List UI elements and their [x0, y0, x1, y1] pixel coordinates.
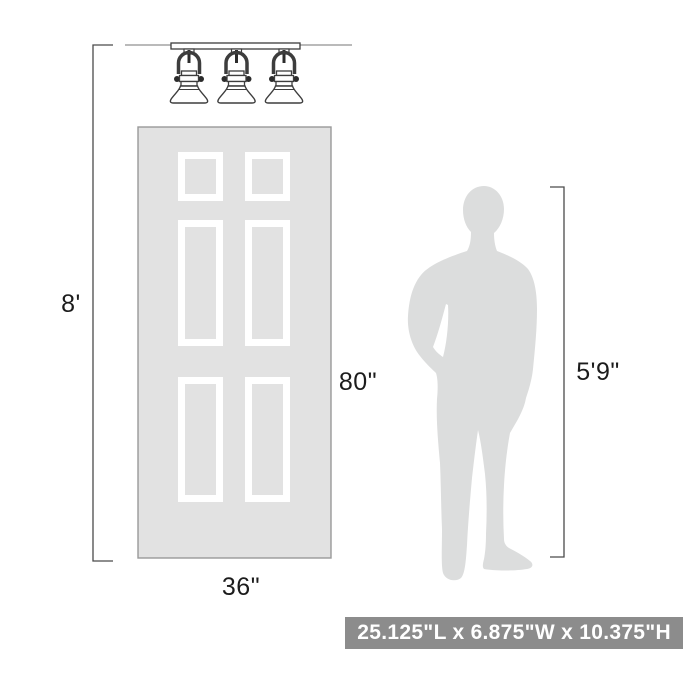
door-width-label: 36" [217, 573, 265, 602]
diagram-canvas [0, 0, 700, 700]
person-height-dimension-line [550, 187, 564, 557]
ceiling-height-label: 8' [54, 290, 88, 319]
door-slab [138, 127, 331, 558]
light-fixture [170, 43, 302, 103]
ceiling-height-dimension-line [93, 45, 113, 561]
person-height-label: 5'9" [571, 358, 625, 387]
man-silhouette [408, 186, 537, 580]
door-height-label: 80" [334, 368, 382, 397]
fixture-mounting-bar [171, 43, 300, 49]
product-dimensions-badge: 25.125"L x 6.875"W x 10.375"H [345, 617, 683, 649]
fixture-lamp [218, 49, 255, 103]
fixture-lamp [170, 49, 207, 103]
dimension-diagram: 8' 80" 36" 5'9" 25.125"L x 6.875"W x 10.… [0, 0, 700, 700]
fixture-lamp [265, 49, 302, 103]
door [138, 127, 331, 558]
